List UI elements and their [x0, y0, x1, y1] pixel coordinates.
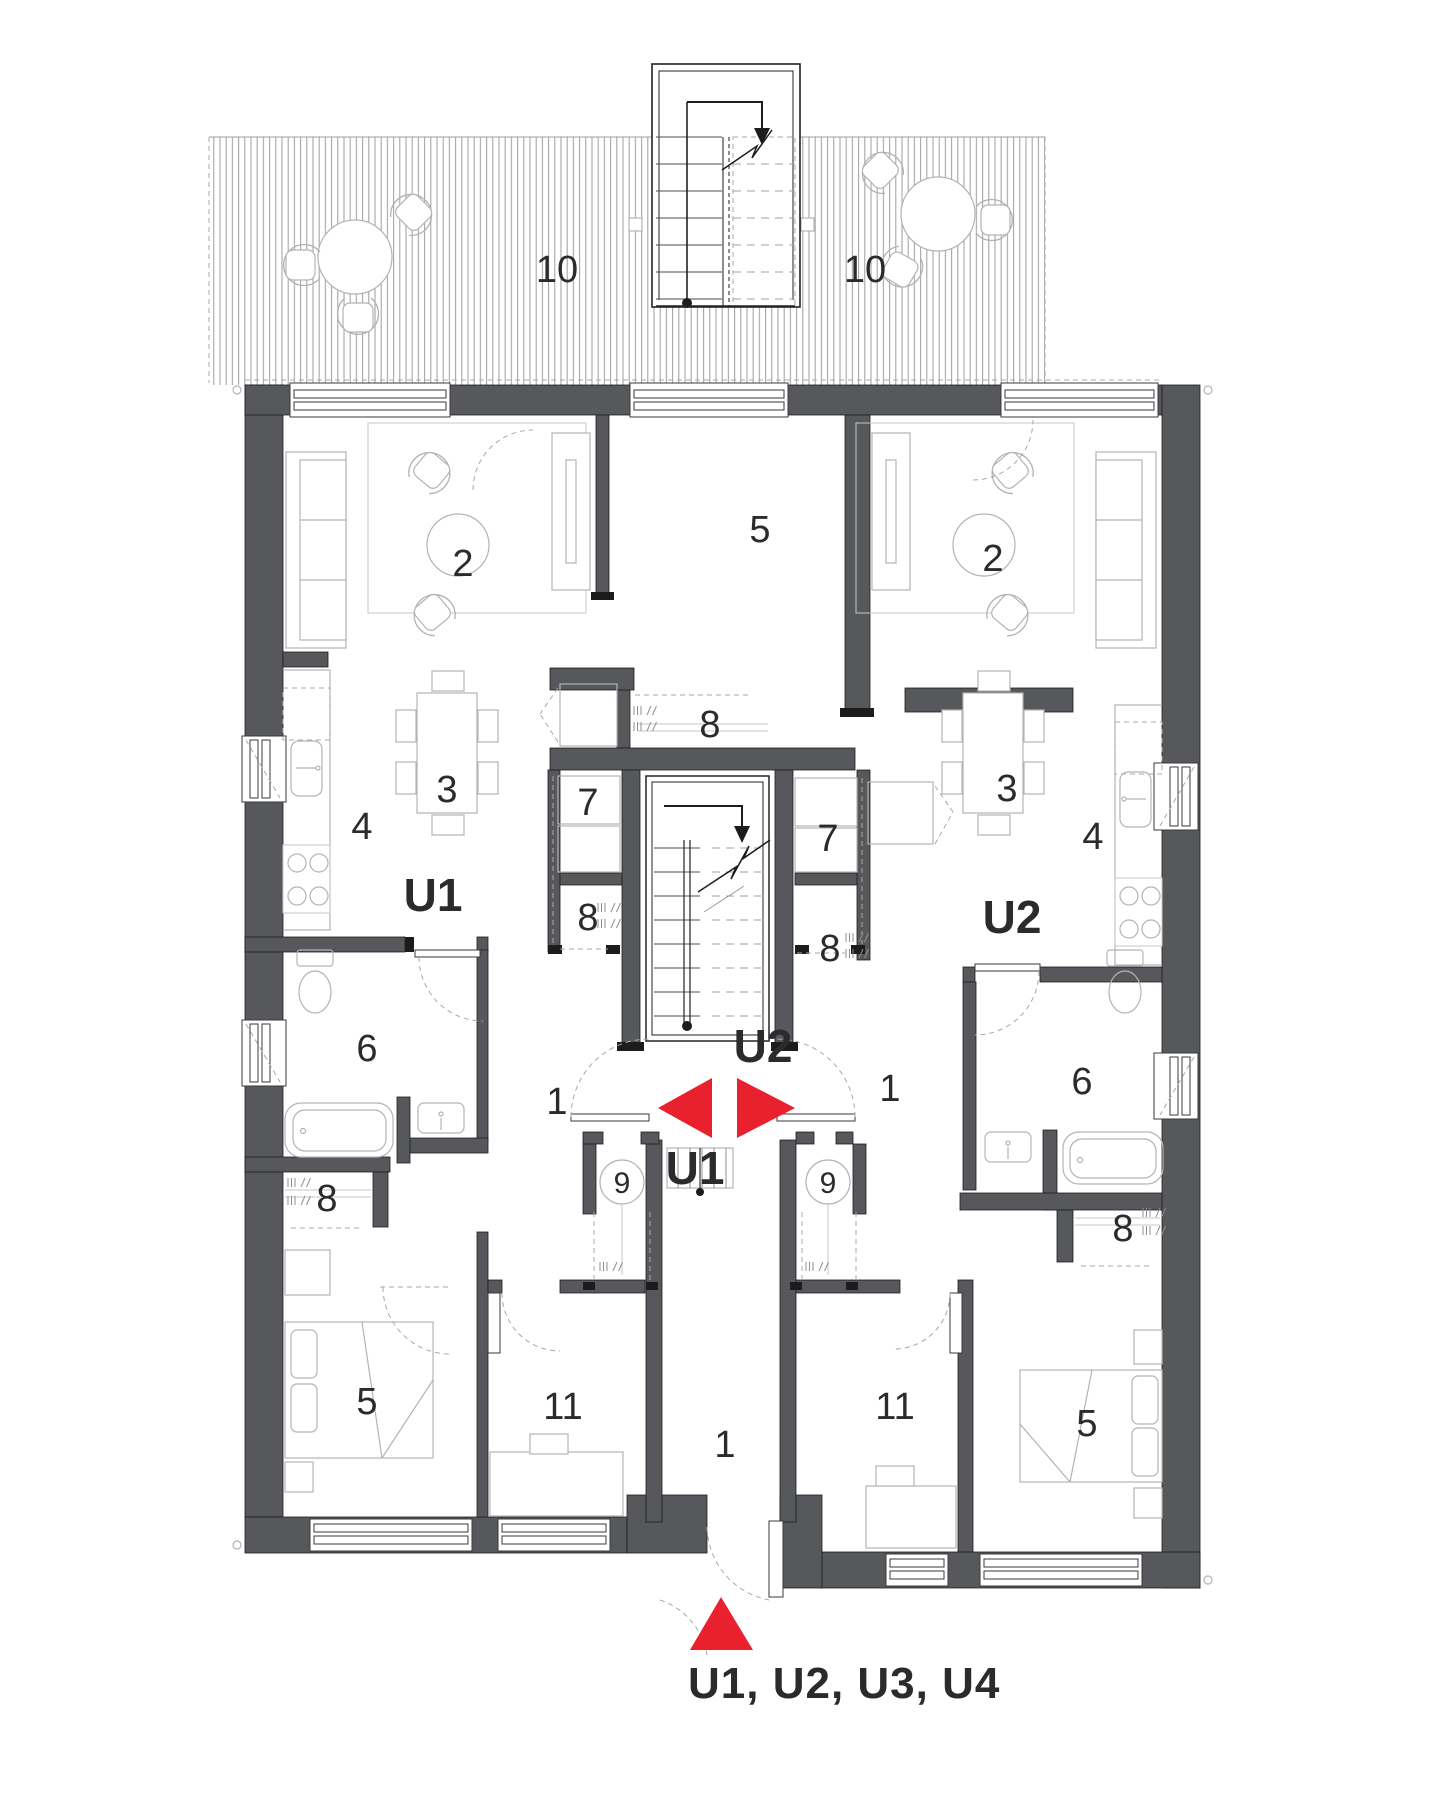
central-stair	[646, 776, 770, 1041]
wall-corridor-left	[646, 1140, 662, 1522]
room-label-laundry-right: 8	[1112, 1208, 1133, 1250]
room-label-closet7-right: 7	[817, 818, 838, 860]
armchair-left-1	[403, 444, 458, 498]
deck-post-right	[801, 218, 814, 231]
exterior-stair	[652, 64, 800, 308]
room-label-dining-right: 3	[996, 768, 1017, 810]
armchair-right-1	[984, 444, 1039, 498]
unit-tag-u2: U2	[983, 891, 1042, 943]
wardrobe-nook-right	[868, 782, 953, 844]
door-bedroom-right	[950, 1293, 962, 1353]
entry-arrow-u2	[737, 1078, 795, 1138]
door-building-entrance	[769, 1521, 783, 1597]
furniture-left-unit	[283, 423, 623, 1516]
room-label-hall8: 8	[699, 704, 720, 746]
room-label-laundry-left: 8	[316, 1178, 337, 1220]
room-label-heater-left: 9	[614, 1167, 631, 1200]
roof-deck: 10 10	[209, 64, 1162, 385]
water-heaters	[594, 1160, 856, 1282]
room-label-living-left: 2	[452, 543, 473, 585]
window-bath-left	[242, 1020, 286, 1086]
room-label-bath-left: 6	[356, 1028, 377, 1070]
wall-exterior-right	[1162, 385, 1200, 1588]
window-room11-right	[886, 1554, 948, 1586]
room-label-entry-left: 1	[546, 1081, 567, 1123]
sofa-right	[1096, 452, 1156, 648]
room-label-corridor: 1	[714, 1424, 735, 1466]
bed-left	[285, 1250, 433, 1492]
entrance-title: U1, U2, U3, U4	[688, 1659, 1000, 1708]
window-bedroom-top	[630, 383, 788, 417]
room-label-deck-left: 10	[536, 249, 578, 291]
room-label-living-right: 2	[982, 538, 1003, 580]
wardrobe-nook-left	[540, 684, 617, 746]
center-tag-u1: U1	[666, 1142, 725, 1194]
window-kitchen-left	[242, 736, 286, 802]
room-label-bedroom-left: 5	[356, 1381, 377, 1423]
room-label-heater-right: 9	[820, 1167, 837, 1200]
kitchen-counter-right	[1115, 705, 1162, 965]
desk-room11-right	[866, 1466, 956, 1548]
wall-corridor-right	[780, 1140, 796, 1522]
floor-plan-drawing: 10 10	[0, 0, 1440, 1800]
desk-room11-left	[490, 1434, 623, 1516]
closet7-right	[795, 778, 862, 953]
wall-porch-left	[627, 1495, 707, 1553]
window-bedroom-bottom-right	[980, 1554, 1142, 1586]
door-bath-right	[975, 964, 1040, 971]
kitchen-counter-left	[283, 670, 330, 930]
room-label-deck-right: 10	[844, 249, 886, 291]
room-label-closet8-right: 8	[819, 928, 840, 970]
window-kitchen-right	[1154, 763, 1198, 830]
tv-unit-right	[872, 433, 910, 590]
door-unit-u2	[777, 1114, 855, 1121]
door-room11-left	[488, 1293, 500, 1353]
center-tag-u2: U2	[734, 1020, 793, 1072]
room-label-room11-right: 11	[875, 1386, 914, 1428]
entry-arrow-main	[690, 1597, 753, 1650]
floor-plan-page: 10 10	[0, 0, 1440, 1800]
sofa-left	[286, 452, 346, 648]
window-living-left	[290, 383, 450, 417]
room-label-closet8-left: 8	[577, 897, 598, 939]
entry-arrow-u1	[658, 1078, 712, 1138]
unit-tag-u1: U1	[404, 869, 463, 921]
room-label-bedroom-right: 5	[1076, 1403, 1097, 1445]
door-bath-left	[415, 950, 480, 957]
window-bedroom-bottom-left	[310, 1519, 472, 1551]
room-label-bedroom-top: 5	[749, 509, 770, 551]
window-room11-left	[498, 1519, 610, 1551]
tv-unit-left	[552, 433, 590, 590]
room-label-entry-right: 1	[879, 1068, 900, 1110]
window-bath-right	[1154, 1053, 1198, 1119]
door-unit-u1	[571, 1114, 649, 1121]
window-living-right	[1001, 383, 1158, 417]
deck-post-left	[629, 218, 642, 231]
room-label-bath-right: 6	[1071, 1061, 1092, 1103]
room-label-kitchen-right: 4	[1082, 816, 1103, 858]
room-label-closet7-left: 7	[577, 782, 598, 824]
room-label-dining-left: 3	[436, 769, 457, 811]
room-label-room11-left: 11	[543, 1386, 582, 1428]
room-label-kitchen-left: 4	[351, 806, 372, 848]
